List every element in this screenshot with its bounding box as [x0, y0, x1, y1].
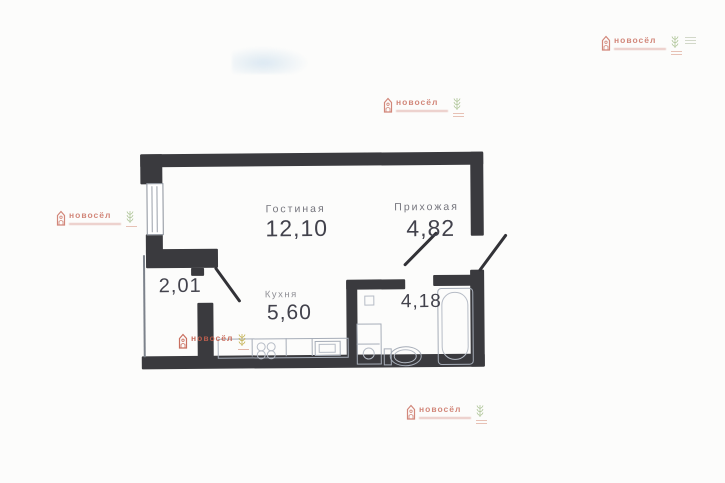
balcony-door-swing — [214, 266, 242, 303]
watermark-novosel: новосёл — [601, 35, 696, 55]
watermark-tagline-line — [396, 110, 448, 112]
kitchen-sink-basin — [319, 344, 336, 353]
laurel-sprig-icon — [238, 333, 246, 347]
watermark-novosel: новосёл — [406, 404, 487, 424]
watermark-mini-text — [685, 40, 696, 42]
watermark-brand-text: новосёл — [69, 210, 121, 220]
watermark-brand-text: новосёл — [419, 404, 471, 414]
laurel-sprig-icon — [671, 35, 679, 49]
watermark-brand-text: новосёл — [396, 97, 448, 107]
watermark-tagline-line — [69, 223, 121, 225]
watermark-brand-text: новосёл — [614, 35, 666, 45]
house-logo-icon — [383, 97, 393, 114]
watermark-tagline-line — [419, 417, 471, 419]
watermark-novosel: новосёл — [178, 333, 249, 350]
watermark-mini-text — [476, 420, 487, 422]
laurel-sprig-icon — [453, 97, 461, 111]
watermark-mini-text — [685, 43, 696, 45]
stove-burner — [267, 350, 276, 359]
house-logo-icon — [56, 210, 66, 227]
watermark-tagline-line — [614, 48, 666, 50]
watermark-mini-text — [671, 51, 682, 53]
watermark-mini-text — [453, 116, 464, 118]
room-area-kitchen: 5,60 — [267, 301, 312, 325]
room-area-bathroom: 4,18 — [401, 291, 442, 313]
washing-machine-divider — [357, 343, 380, 344]
wall-bath-top-left — [346, 279, 405, 289]
laurel-sprig-icon — [126, 210, 134, 224]
house-logo-icon — [601, 35, 611, 52]
floorplan: Гостиная 12,10 Прихожая 4,82 2,01 Кухня … — [0, 0, 725, 483]
stove-burner — [257, 350, 266, 359]
counter-divider — [286, 338, 287, 356]
window — [146, 183, 163, 235]
room-area-balcony: 2,01 — [159, 275, 202, 298]
wall-bath-top-right — [433, 275, 471, 286]
house-logo-icon — [406, 404, 416, 421]
window-pane-line — [156, 186, 157, 232]
counter-divider — [312, 338, 313, 356]
counter-divider — [252, 338, 253, 356]
watermark-mini-text — [685, 37, 696, 39]
room-name-kitchen: Кухня — [265, 289, 298, 300]
watermark-novosel: новосёл — [56, 210, 137, 227]
watermark-mini-text — [476, 423, 487, 425]
room-area-hallway: 4,82 — [406, 215, 455, 242]
room-area-living: 12,10 — [265, 215, 328, 242]
wall-left-top-block — [140, 154, 162, 184]
wall-top — [140, 152, 483, 168]
watermark-mini-text — [453, 113, 464, 115]
balcony-outer-line — [143, 255, 146, 357]
wall-balcony-top — [146, 249, 218, 269]
watermark-mini-text — [671, 54, 682, 56]
bathtub-basin — [441, 292, 469, 360]
toilet-bowl-inner — [394, 349, 417, 363]
house-logo-icon — [178, 333, 188, 350]
washing-machine-door — [363, 347, 375, 359]
watermark-novosel: новосёл — [383, 97, 464, 117]
wall-right-upper — [470, 152, 484, 236]
watermark-brand-text: новосёл — [191, 333, 233, 343]
room-name-hallway: Прихожая — [394, 201, 459, 214]
scanned-floorplan-page: Гостиная 12,10 Прихожая 4,82 2,01 Кухня … — [0, 0, 725, 483]
watermark-mini-text — [238, 349, 249, 351]
window-pane-line — [151, 186, 152, 232]
laurel-sprig-icon — [476, 404, 484, 418]
room-name-living: Гостиная — [266, 203, 326, 215]
vent-symbol — [364, 295, 374, 305]
entrance-door-swing — [478, 233, 508, 272]
watermark-mini-text — [126, 226, 137, 228]
